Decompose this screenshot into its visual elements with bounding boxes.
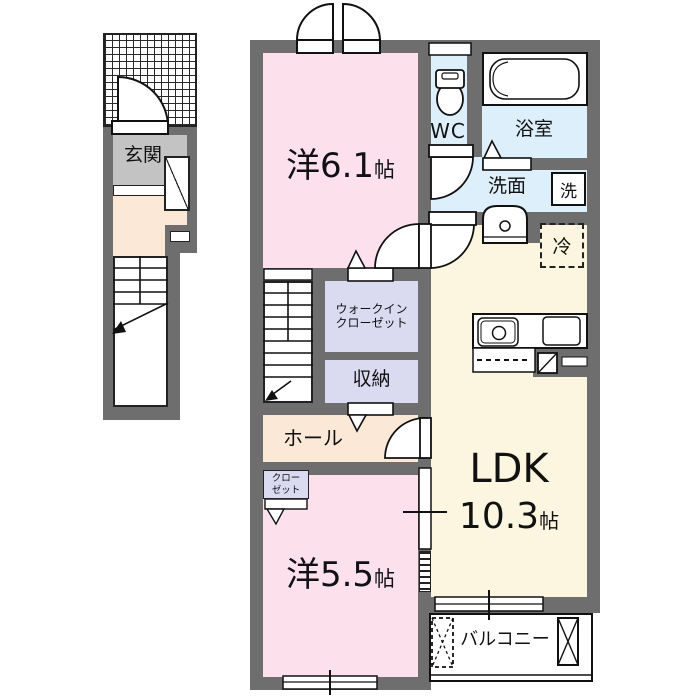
balcony-label: バルコニー	[445, 630, 565, 651]
washer-label: 洗	[560, 177, 577, 202]
kitchen-side-block	[533, 348, 587, 377]
hall-label: ホール	[263, 427, 363, 450]
washroom-label: 洗面	[462, 176, 552, 198]
closet-label-line2: ゼット	[264, 485, 308, 497]
closet-label-line1: クロー	[264, 473, 308, 485]
floor-plan: 洗 冷 クロー ゼット 玄関 洋6.1帖 WC 浴室 洗面 ウォークイン クロー…	[0, 0, 700, 700]
genkan-label: 玄関	[105, 145, 181, 167]
bedroom1-label: 洋6.1帖	[263, 147, 418, 186]
annex-wall-window	[170, 231, 190, 242]
bath-floor	[482, 53, 587, 158]
genkan-step	[113, 185, 166, 196]
washroom-stub-wall	[527, 222, 540, 243]
walk-in-closet-label: ウォークイン クローゼット	[325, 302, 418, 330]
ldk-floor	[431, 212, 587, 597]
annex-hall-floor-2	[113, 225, 165, 256]
wc-label: WC	[428, 120, 468, 143]
stairs-upper-floor	[263, 281, 313, 403]
bath-label: 浴室	[482, 119, 586, 141]
stairs-lower-floor	[113, 256, 168, 407]
fridge-label: 冷	[552, 232, 571, 259]
closet-box: クロー ゼット	[263, 470, 309, 499]
bath-south-wall	[482, 158, 587, 170]
bedroom2-label: 洋5.5帖	[263, 556, 418, 595]
entrance-porch-hatch	[103, 33, 197, 127]
washer-box: 洗	[551, 172, 586, 206]
storage-label: 収納	[325, 369, 418, 391]
fridge-box: 冷	[540, 223, 584, 268]
ldk-label: LDK 10.3帖	[431, 446, 587, 537]
wall-hatch-strip	[419, 551, 431, 592]
